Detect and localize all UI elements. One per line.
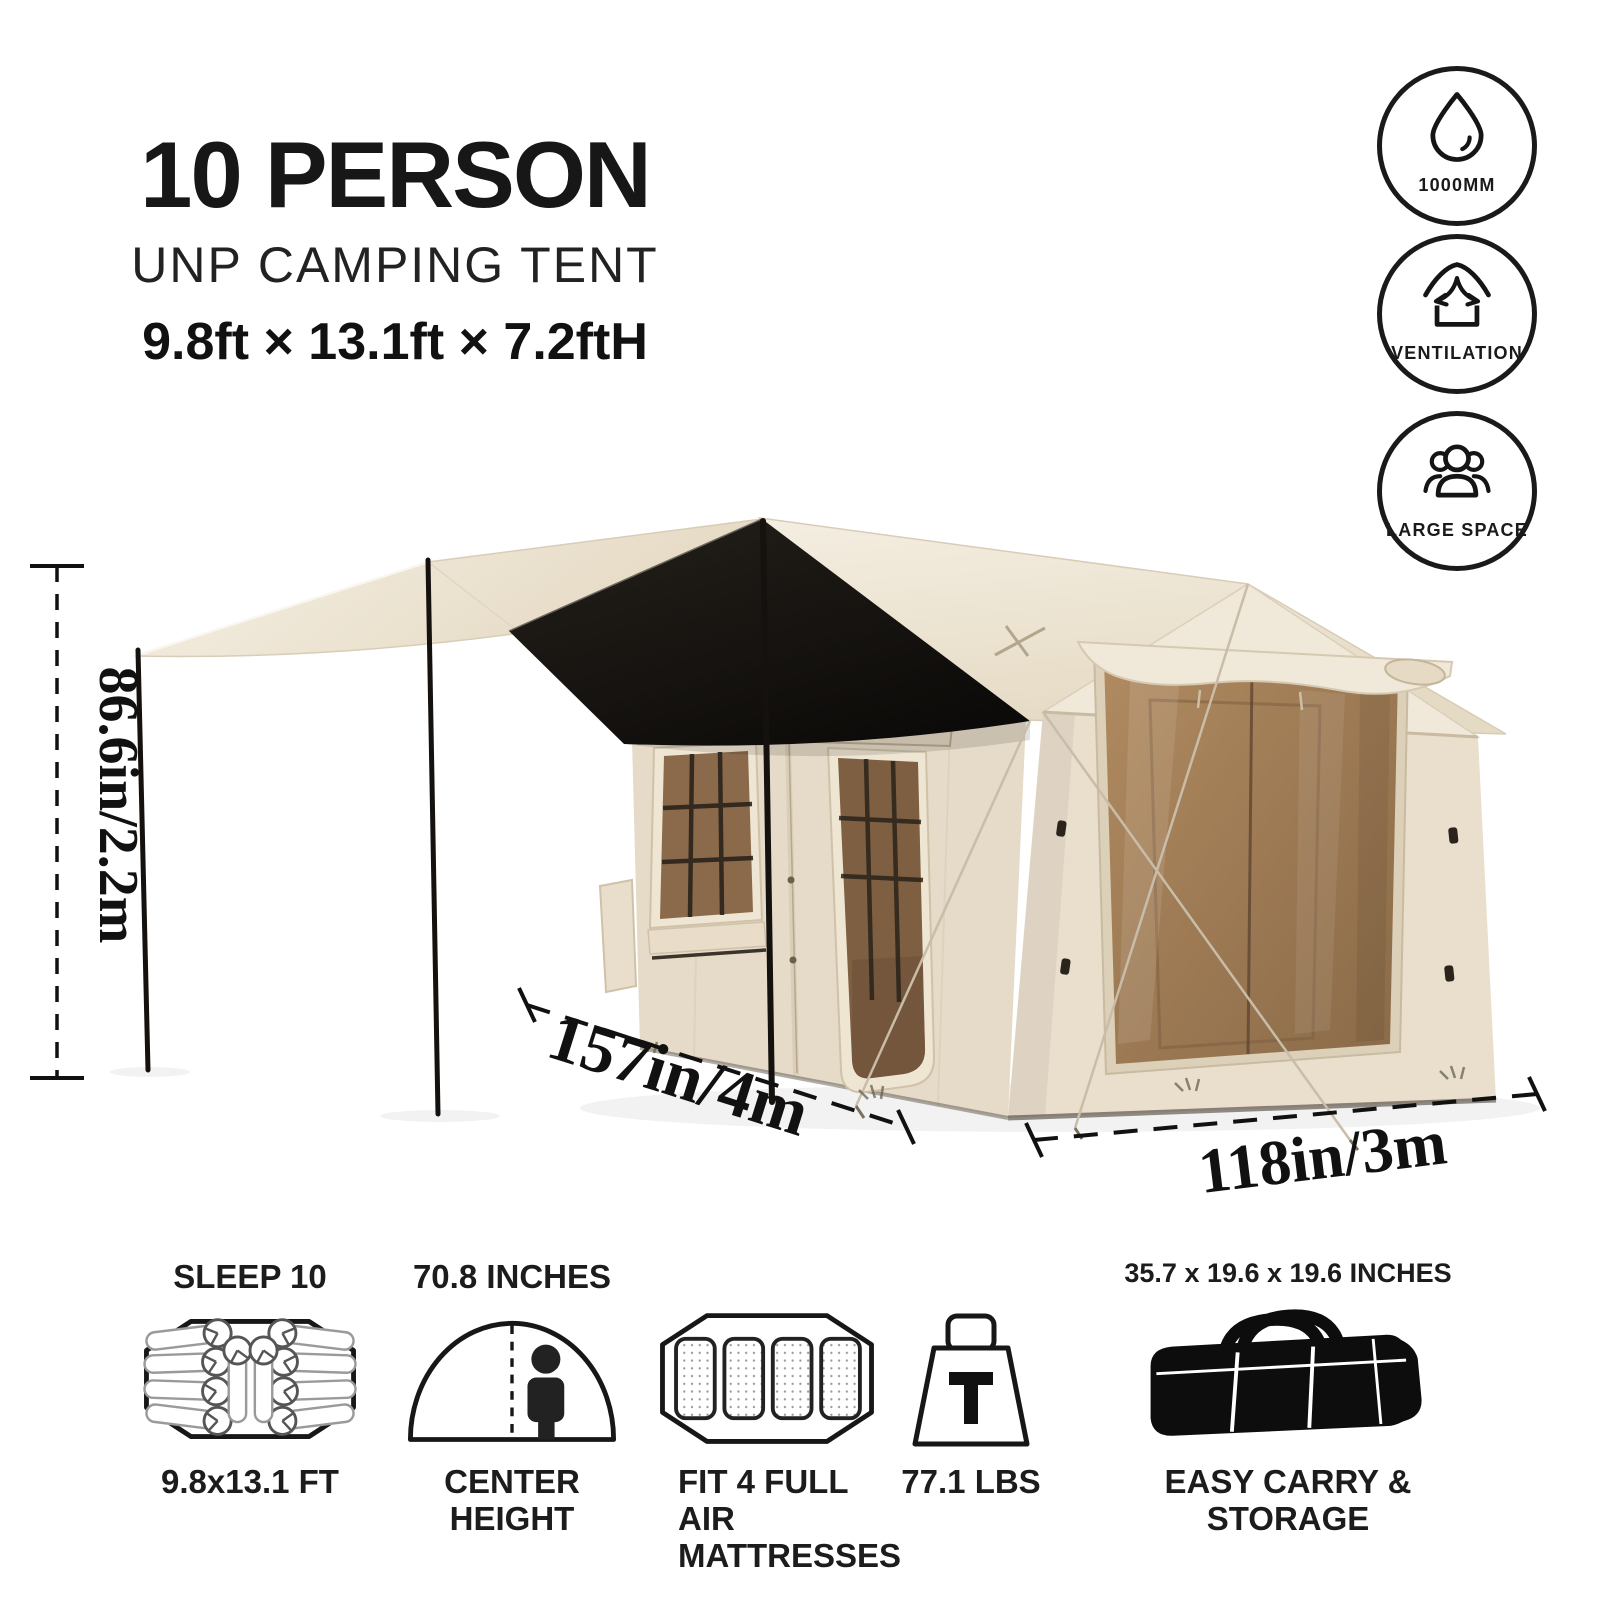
feature-top-label (642, 1258, 892, 1304)
feature-top-label: 70.8 INCHES (382, 1258, 642, 1304)
feature-bottom-label: 77.1 LBS (896, 1464, 1046, 1501)
feature-air-mattresses: FIT 4 FULL AIR MATTRESSES (642, 1258, 892, 1575)
feature-sleep-capacity: SLEEP 10 9.8x13.1 FT (122, 1258, 378, 1501)
feature-carry-bag: 35.7 x 19.6 x 19.6 INCHES EASY CARRY & S… (1106, 1258, 1470, 1538)
height-dimension: 86.6in/2.2m (30, 566, 149, 1078)
product-infographic: 10 PERSON UNP CAMPING TENT 9.8ft × 13.1f… (0, 0, 1600, 1600)
carry-bag-icon (1118, 1304, 1458, 1454)
floor-plan-icon (125, 1304, 375, 1454)
feature-bottom-label: FIT 4 FULL AIR MATTRESSES (642, 1464, 892, 1575)
feature-center-height: 70.8 INCHES CENTER HEIGHT (382, 1258, 642, 1538)
air-mattresses-icon (647, 1304, 887, 1454)
height-dimension-label: 86.6in/2.2m (87, 667, 149, 944)
feature-weight: 77.1 LBS (896, 1258, 1046, 1501)
feature-bottom-label: 9.8x13.1 FT (122, 1464, 378, 1501)
feature-bottom-label: EASY CARRY & STORAGE (1106, 1464, 1470, 1538)
weight-icon (896, 1304, 1046, 1454)
feature-bottom-label: CENTER HEIGHT (382, 1464, 642, 1538)
feature-top-label (896, 1258, 1046, 1304)
feature-top-label: SLEEP 10 (122, 1258, 378, 1304)
center-height-icon (392, 1304, 632, 1454)
feature-top-label: 35.7 x 19.6 x 19.6 INCHES (1106, 1258, 1470, 1304)
